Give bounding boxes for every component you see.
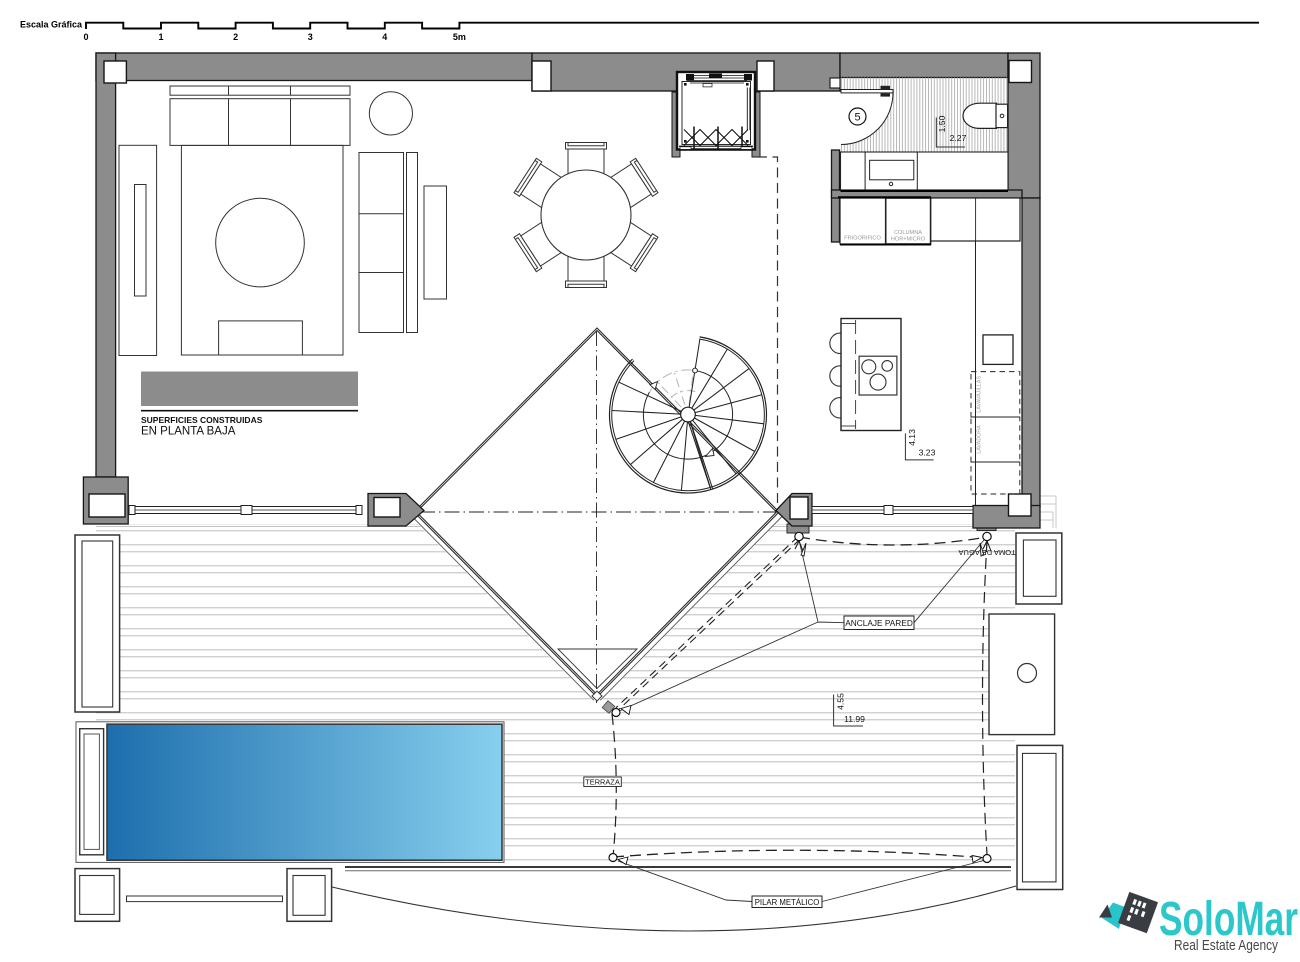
svg-text:4: 4 xyxy=(382,32,387,42)
svg-text:ANCLAJE PARED: ANCLAJE PARED xyxy=(845,618,913,628)
svg-text:5: 5 xyxy=(854,112,860,124)
svg-text:2: 2 xyxy=(233,32,238,42)
svg-text:EN PLANTA BAJA: EN PLANTA BAJA xyxy=(141,426,236,438)
svg-text:SUPERFICIES CONSTRUIDAS: SUPERFICIES CONSTRUIDAS xyxy=(141,415,263,425)
svg-text:LAVADORA: LAVADORA xyxy=(976,425,982,454)
svg-text:3: 3 xyxy=(308,32,313,42)
svg-text:11.99: 11.99 xyxy=(844,714,865,724)
svg-text:0: 0 xyxy=(83,32,88,42)
svg-text:COLUMNA: COLUMNA xyxy=(894,230,922,236)
svg-text:LAVAVAJILLAS: LAVAVAJILLAS xyxy=(977,376,983,413)
svg-text:PILAR METÁLICO: PILAR METÁLICO xyxy=(755,898,820,907)
svg-text:2.27: 2.27 xyxy=(950,133,967,143)
svg-text:FRIGORIFICO: FRIGORIFICO xyxy=(844,236,881,242)
svg-text:Real Estate Agency: Real Estate Agency xyxy=(1174,938,1279,954)
svg-text:3.23: 3.23 xyxy=(919,448,936,458)
svg-text:5m: 5m xyxy=(453,32,466,42)
svg-text:4.13: 4.13 xyxy=(907,429,917,446)
svg-text:TOMA DE AGUA: TOMA DE AGUA xyxy=(957,548,1015,557)
svg-text:1.50: 1.50 xyxy=(937,115,947,132)
svg-text:1: 1 xyxy=(158,32,163,42)
svg-text:4.55: 4.55 xyxy=(835,693,845,710)
svg-text:TERRAZA: TERRAZA xyxy=(585,778,620,787)
svg-text:HOR+MICRO: HOR+MICRO xyxy=(891,237,926,243)
svg-text:Escala Gráfica: Escala Gráfica xyxy=(20,20,83,30)
